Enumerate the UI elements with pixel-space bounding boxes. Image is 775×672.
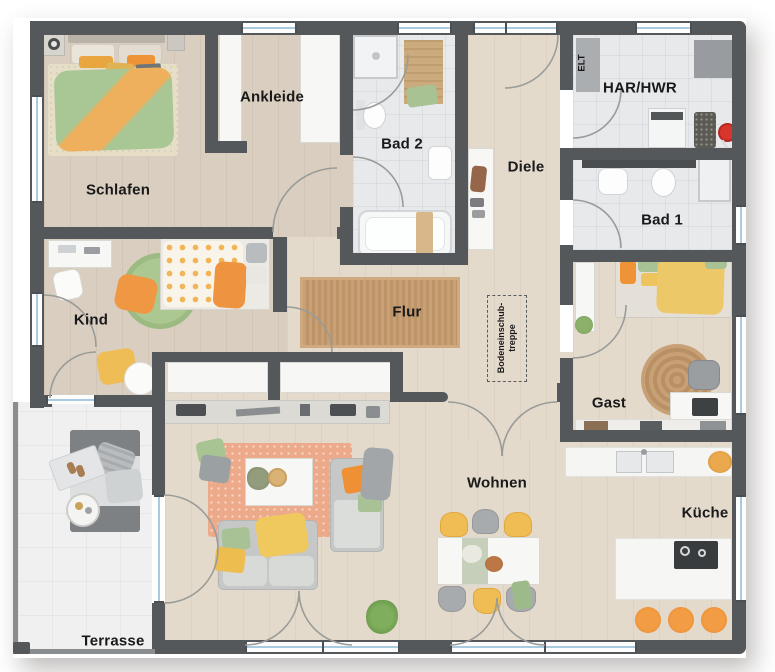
laundry-basket: [694, 112, 716, 148]
houseplant: [575, 316, 593, 334]
wall: [560, 430, 732, 442]
room-label-wohnen: Wohnen: [467, 475, 527, 492]
window: [450, 642, 637, 652]
wall: [560, 250, 732, 262]
books: [640, 421, 662, 430]
window: [736, 315, 746, 415]
dining-chair: [473, 588, 501, 614]
sofa-seat: [269, 556, 314, 586]
washing-machine-panel: [651, 112, 683, 120]
record-player: [366, 406, 380, 418]
utility-cabinet: [694, 40, 732, 78]
books: [700, 421, 726, 430]
orange-blanket: [212, 261, 247, 309]
desk-items: [84, 247, 100, 254]
terrace-wall: [13, 649, 155, 654]
tv-lowboard: [280, 362, 393, 393]
room-label-diele: Diele: [508, 159, 545, 176]
terrace-french-door: [154, 495, 164, 603]
accent-pillow: [214, 546, 246, 573]
speaker-icon: [48, 38, 60, 50]
shower: [698, 155, 731, 202]
window: [635, 23, 692, 33]
window: [32, 292, 42, 347]
cooktop: [674, 541, 718, 569]
window: [736, 495, 746, 602]
towel: [406, 84, 438, 108]
entrance-door: [473, 23, 558, 33]
room-label-kind: Kind: [74, 312, 108, 329]
bath-caddy: [416, 212, 433, 256]
terrace-post: [13, 642, 30, 654]
books: [584, 421, 608, 430]
food-bowl: [485, 556, 503, 572]
duvet: [54, 67, 175, 152]
throw-blanket: [254, 512, 309, 559]
attic-stairs-line2: treppe: [507, 303, 518, 374]
wall: [337, 227, 353, 239]
shoes: [472, 210, 485, 218]
window: [397, 23, 452, 33]
wall: [152, 640, 746, 654]
desk-items: [58, 245, 76, 253]
speaker: [330, 404, 356, 416]
bar-stool: [668, 607, 694, 633]
cup: [85, 507, 92, 514]
room-label-ankleide: Ankleide: [240, 89, 304, 106]
wall: [340, 253, 468, 265]
coat-rack-items: [470, 165, 488, 192]
desk-chair: [51, 267, 85, 302]
bar-stool: [635, 607, 661, 633]
window: [736, 205, 746, 245]
washbasin: [598, 168, 628, 195]
towel: [511, 580, 533, 610]
wall: [165, 352, 395, 362]
terrace-door: [46, 396, 96, 404]
shoes: [470, 198, 484, 207]
burner-icon: [698, 549, 706, 557]
room-label-bad1: Bad 1: [641, 212, 683, 229]
kitchen-sink: [646, 451, 674, 473]
room-label-terrasse: Terrasse: [81, 633, 144, 650]
kitchen-sink: [616, 451, 642, 473]
throw-blanket: [360, 447, 394, 501]
window: [241, 23, 297, 33]
bed-pillow: [246, 266, 267, 284]
floor-blanket: [198, 454, 231, 484]
room-label-flur: Flur: [392, 304, 421, 321]
garden-door: [245, 642, 400, 652]
washbasin: [428, 146, 452, 180]
terrace-wall: [13, 402, 18, 654]
desk-chair: [688, 360, 720, 390]
room-label-kueche: Küche: [682, 505, 729, 522]
wall: [30, 227, 273, 239]
bar-stool: [701, 607, 727, 633]
tv-lowboard: [167, 362, 268, 393]
wall: [560, 148, 732, 160]
dining-chair: [472, 509, 499, 534]
room-label-gast: Gast: [592, 395, 626, 412]
faucet-icon: [641, 449, 647, 455]
toilet: [651, 168, 676, 197]
wardrobe: [219, 33, 242, 143]
wall: [560, 35, 573, 90]
speaker: [176, 404, 206, 416]
wall: [340, 35, 353, 155]
nightstand: [167, 33, 185, 51]
room-label-bad2: Bad 2: [381, 136, 423, 153]
serving-tray: [268, 468, 287, 487]
toilet: [363, 102, 386, 129]
wall: [152, 352, 165, 495]
fruit-bowl: [708, 451, 732, 473]
houseplant: [247, 467, 270, 490]
attic-stairs-label: Bodeneinschub- treppe: [496, 303, 518, 374]
burner-icon: [680, 546, 690, 556]
wall: [205, 141, 247, 153]
cup: [75, 502, 83, 510]
dining-chair: [438, 586, 466, 612]
wall-pillar: [268, 352, 280, 400]
accent-pillow: [620, 260, 636, 284]
shower-drain-icon: [372, 52, 380, 60]
outdoor-pillow: [104, 468, 143, 504]
hall-jute-rug: [300, 277, 460, 348]
wall: [273, 237, 287, 312]
speaker: [300, 404, 310, 416]
dining-chair: [440, 512, 468, 537]
wardrobe: [300, 33, 340, 143]
window: [32, 95, 42, 203]
room-label-schlafen: Schlafen: [86, 182, 150, 199]
floor-plan: Bodeneinschub- treppe Schlafen Ankleide …: [0, 0, 775, 672]
wall: [30, 21, 44, 408]
wall: [560, 160, 573, 200]
attic-stairs-line1: Bodeneinschub-: [496, 303, 507, 374]
room-label-elt: ELT: [577, 54, 588, 71]
wall: [205, 35, 218, 145]
outdoor-table: [66, 493, 100, 527]
laptop: [692, 398, 718, 416]
wall: [455, 35, 468, 265]
wall: [152, 603, 165, 640]
wall: [395, 392, 448, 402]
bathtub-basin: [365, 217, 445, 251]
wall: [560, 262, 573, 305]
bed-pillow: [246, 243, 267, 263]
room-label-har-hwr: HAR/HWR: [603, 80, 677, 97]
dining-chair: [504, 512, 532, 537]
